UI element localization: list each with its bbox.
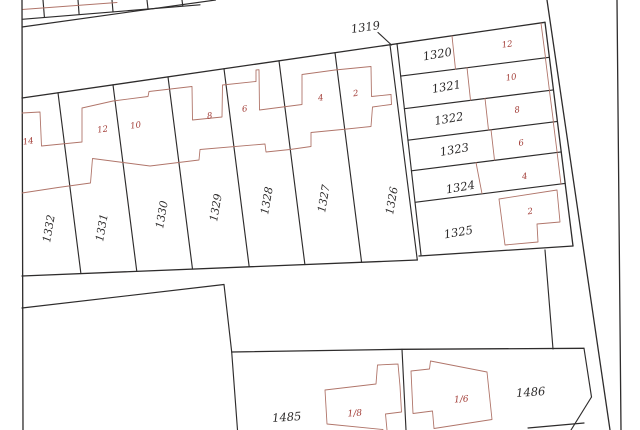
terrace-front-outline: [22, 67, 391, 147]
block-divider-1323-1324: [411, 152, 561, 171]
top-strip-building-outline: [22, 3, 117, 10]
parcel-divider-1328-1327: [279, 61, 305, 265]
parcel-label-1327: 1327: [315, 184, 333, 214]
parcel-divider-1330-1329: [168, 77, 193, 269]
parcel-label-1325: 1325: [443, 223, 474, 242]
alley-1319-west-edge: [390, 45, 417, 260]
parcel-label-1485: 1485: [272, 409, 302, 425]
top-strip-parcels: [22, 0, 216, 27]
house-label-8: 8: [206, 111, 213, 122]
parcel-label-1321: 1321: [431, 77, 462, 96]
house-label-2: 2: [351, 89, 359, 100]
building-1-8-outline: [325, 364, 402, 430]
house-label-10: 10: [130, 120, 143, 131]
east-road-east-edge: [617, 0, 621, 430]
parcel-label-1329: 1329: [207, 193, 225, 223]
parcel-label-1324: 1324: [445, 178, 476, 197]
parcel-label-1320: 1320: [422, 45, 453, 64]
leader-line-1319: [378, 33, 392, 46]
cadastral-map: 1319 1332 1331 1330 1329 1328 1327 1326 …: [0, 0, 640, 430]
parcel-label-1486: 1486: [516, 384, 546, 400]
house-label-block-4: 4: [520, 172, 528, 183]
terrace-buildings: [22, 67, 392, 194]
labels: 1319 1332 1331 1330 1329 1328 1327 1326 …: [22, 18, 546, 425]
west-boundary-line: [22, 0, 23, 430]
house-label-block-8: 8: [514, 105, 521, 116]
block-divider-1321-1322: [404, 90, 553, 109]
parcel-divider-1485-1486: [402, 349, 406, 430]
block-south-edge: [419, 246, 573, 256]
parcel-label-1326: 1326: [383, 186, 401, 216]
house-label-12: 12: [97, 124, 109, 135]
south-road: [22, 250, 553, 430]
parcel-1486-south-edge: [528, 423, 584, 428]
road-connector-edge: [545, 250, 553, 349]
parcel-divider-1329-1328: [224, 69, 249, 267]
house-label-6: 6: [241, 104, 248, 115]
parcel-label-1322: 1322: [433, 109, 464, 128]
house-label-block-10: 10: [505, 72, 518, 83]
parcel-label-1330: 1330: [153, 200, 171, 230]
parcel-divider-1332-1331: [58, 93, 81, 274]
parcel-divider-1331-1330: [113, 85, 137, 272]
parcel-label-1332: 1332: [40, 214, 58, 244]
house-label-1-8: 1/8: [347, 408, 362, 419]
top-strip-lower-edge: [22, 5, 200, 19]
terrace-end-wall: [391, 95, 392, 105]
building-1-6-outline: [411, 361, 492, 429]
top-strip-divider: [112, 0, 113, 12]
house-label-1-6: 1/6: [454, 394, 469, 405]
top-strip-divider: [147, 0, 148, 9]
block-buildings: [452, 23, 561, 245]
block-divider-1322-1323: [408, 121, 558, 140]
south-parcels-north-edge: [232, 348, 584, 352]
southwest-region-edge: [224, 285, 238, 430]
building-4-outline: [476, 153, 561, 193]
top-strip-divider: [43, 0, 44, 17]
parcel-1486-corner-edge: [571, 397, 592, 430]
east-road-west-edge: [547, 0, 610, 430]
cadastral-map-canvas: 1319 1332 1331 1330 1329 1328 1327 1326 …: [0, 0, 640, 430]
parcel-divider-1327-1326: [335, 53, 362, 263]
parcel-label-1319: 1319: [350, 18, 381, 36]
house-label-block-12: 12: [501, 39, 513, 50]
parcel-label-1328: 1328: [258, 186, 276, 216]
parcel-1486-east-edge: [584, 348, 592, 397]
house-label-4: 4: [316, 93, 324, 104]
house-label-block-6: 6: [518, 138, 525, 149]
building-2-outline: [499, 190, 560, 245]
block-divider-1324-1325: [415, 183, 565, 202]
top-strip-road-edge: [22, 0, 216, 27]
parcel-label-1331: 1331: [93, 213, 111, 243]
road-south-edge: [22, 285, 224, 309]
top-strip-divider: [78, 0, 79, 14]
house-label-14: 14: [22, 136, 34, 147]
row-north-boundary: [22, 22, 545, 98]
parcel-label-1323: 1323: [439, 140, 470, 159]
top-strip-divider: [182, 0, 183, 6]
building-12-outline: [452, 23, 546, 69]
house-label-block-2: 2: [526, 207, 534, 218]
